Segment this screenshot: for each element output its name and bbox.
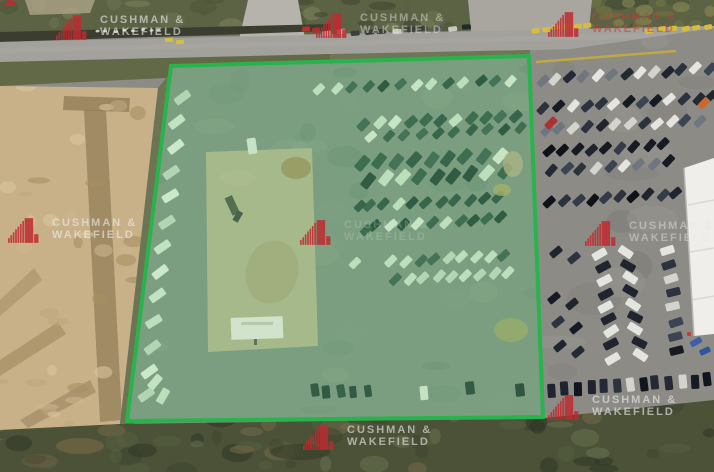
aerial-scene <box>0 0 714 472</box>
aerial-property-photo: CUSHMAN & WAKEFIELD CUSHMAN & WAKEFIELD … <box>0 0 714 472</box>
gravel-path <box>25 0 95 15</box>
parcel-boundary-overlay <box>127 56 543 421</box>
